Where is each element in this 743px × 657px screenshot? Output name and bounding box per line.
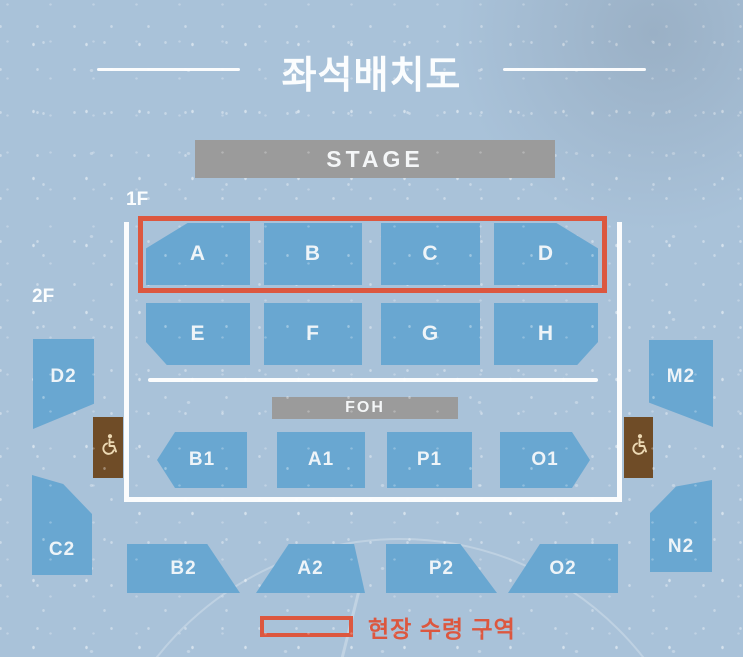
section-e: E (146, 303, 250, 365)
seat-map: 좌석배치도 STAGE 1F 2F A B C D E F G H FOH B1… (0, 0, 743, 657)
section-c2: C2 (32, 475, 92, 575)
section-f: F (264, 303, 362, 365)
row-divider (148, 378, 598, 382)
wheelchair-icon (100, 433, 117, 462)
legend-swatch (260, 616, 353, 637)
section-g: G (381, 303, 480, 365)
section-h: H (494, 303, 598, 365)
stage-bar: STAGE (195, 140, 555, 178)
section-a2: A2 (256, 544, 365, 593)
page-title: 좌석배치도 (0, 44, 743, 99)
pickup-zone-highlight (138, 216, 607, 293)
section-d2: D2 (33, 339, 94, 429)
wheelchair-zone-left (93, 417, 123, 478)
section-m2: M2 (649, 340, 713, 427)
section-o1: O1 (500, 432, 590, 488)
section-o2: O2 (508, 544, 618, 593)
wheelchair-zone-right (624, 417, 653, 478)
section-a1: A1 (277, 432, 365, 488)
legend-label: 현장 수령 구역 (368, 612, 516, 642)
section-b1: B1 (157, 432, 247, 488)
title-rule-right (503, 68, 646, 71)
section-p1: P1 (387, 432, 472, 488)
foh-bar: FOH (272, 397, 458, 419)
section-b2: B2 (127, 544, 240, 593)
floor-1f-label: 1F (126, 189, 148, 211)
wheelchair-icon (630, 433, 647, 462)
floor-2f-label: 2F (32, 286, 54, 308)
section-n2: N2 (650, 480, 712, 572)
